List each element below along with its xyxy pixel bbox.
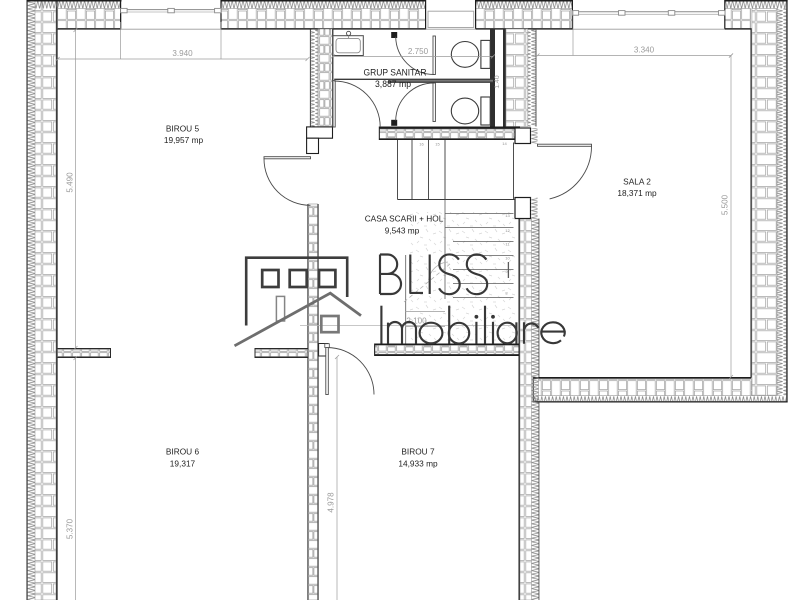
svg-text:14,933 mp: 14,933 mp xyxy=(398,459,438,469)
svg-text:CASA SCARII + HOL: CASA SCARII + HOL xyxy=(365,214,444,224)
svg-text:19,317: 19,317 xyxy=(170,459,196,469)
svg-text:5.500: 5.500 xyxy=(721,194,730,215)
svg-text:GRUP SANITAR: GRUP SANITAR xyxy=(364,67,427,78)
svg-text:15: 15 xyxy=(435,141,440,146)
svg-text:2.750: 2.750 xyxy=(408,47,429,56)
svg-text:BIROU 5: BIROU 5 xyxy=(166,124,200,134)
svg-text:1.40: 1.40 xyxy=(494,75,501,88)
svg-text:BIROU 7: BIROU 7 xyxy=(401,447,435,457)
svg-text:18,371 mp: 18,371 mp xyxy=(617,188,657,198)
svg-text:12: 12 xyxy=(505,228,510,233)
svg-text:SALA 2: SALA 2 xyxy=(623,177,651,187)
svg-text:4.978: 4.978 xyxy=(327,492,336,513)
svg-text:5.370: 5.370 xyxy=(66,518,75,539)
svg-text:9,543 mp: 9,543 mp xyxy=(385,226,420,236)
svg-text:BIROU 6: BIROU 6 xyxy=(166,447,200,457)
svg-text:19,957 mp: 19,957 mp xyxy=(164,135,204,145)
svg-text:3.340: 3.340 xyxy=(634,46,655,55)
svg-text:5.490: 5.490 xyxy=(66,172,75,193)
svg-text:3.940: 3.940 xyxy=(172,49,193,58)
svg-text:14: 14 xyxy=(502,141,507,146)
svg-text:16: 16 xyxy=(419,141,424,146)
svg-text:13: 13 xyxy=(505,213,510,218)
svg-text:10: 10 xyxy=(505,255,510,260)
svg-text:3,887 mp: 3,887 mp xyxy=(375,79,411,89)
